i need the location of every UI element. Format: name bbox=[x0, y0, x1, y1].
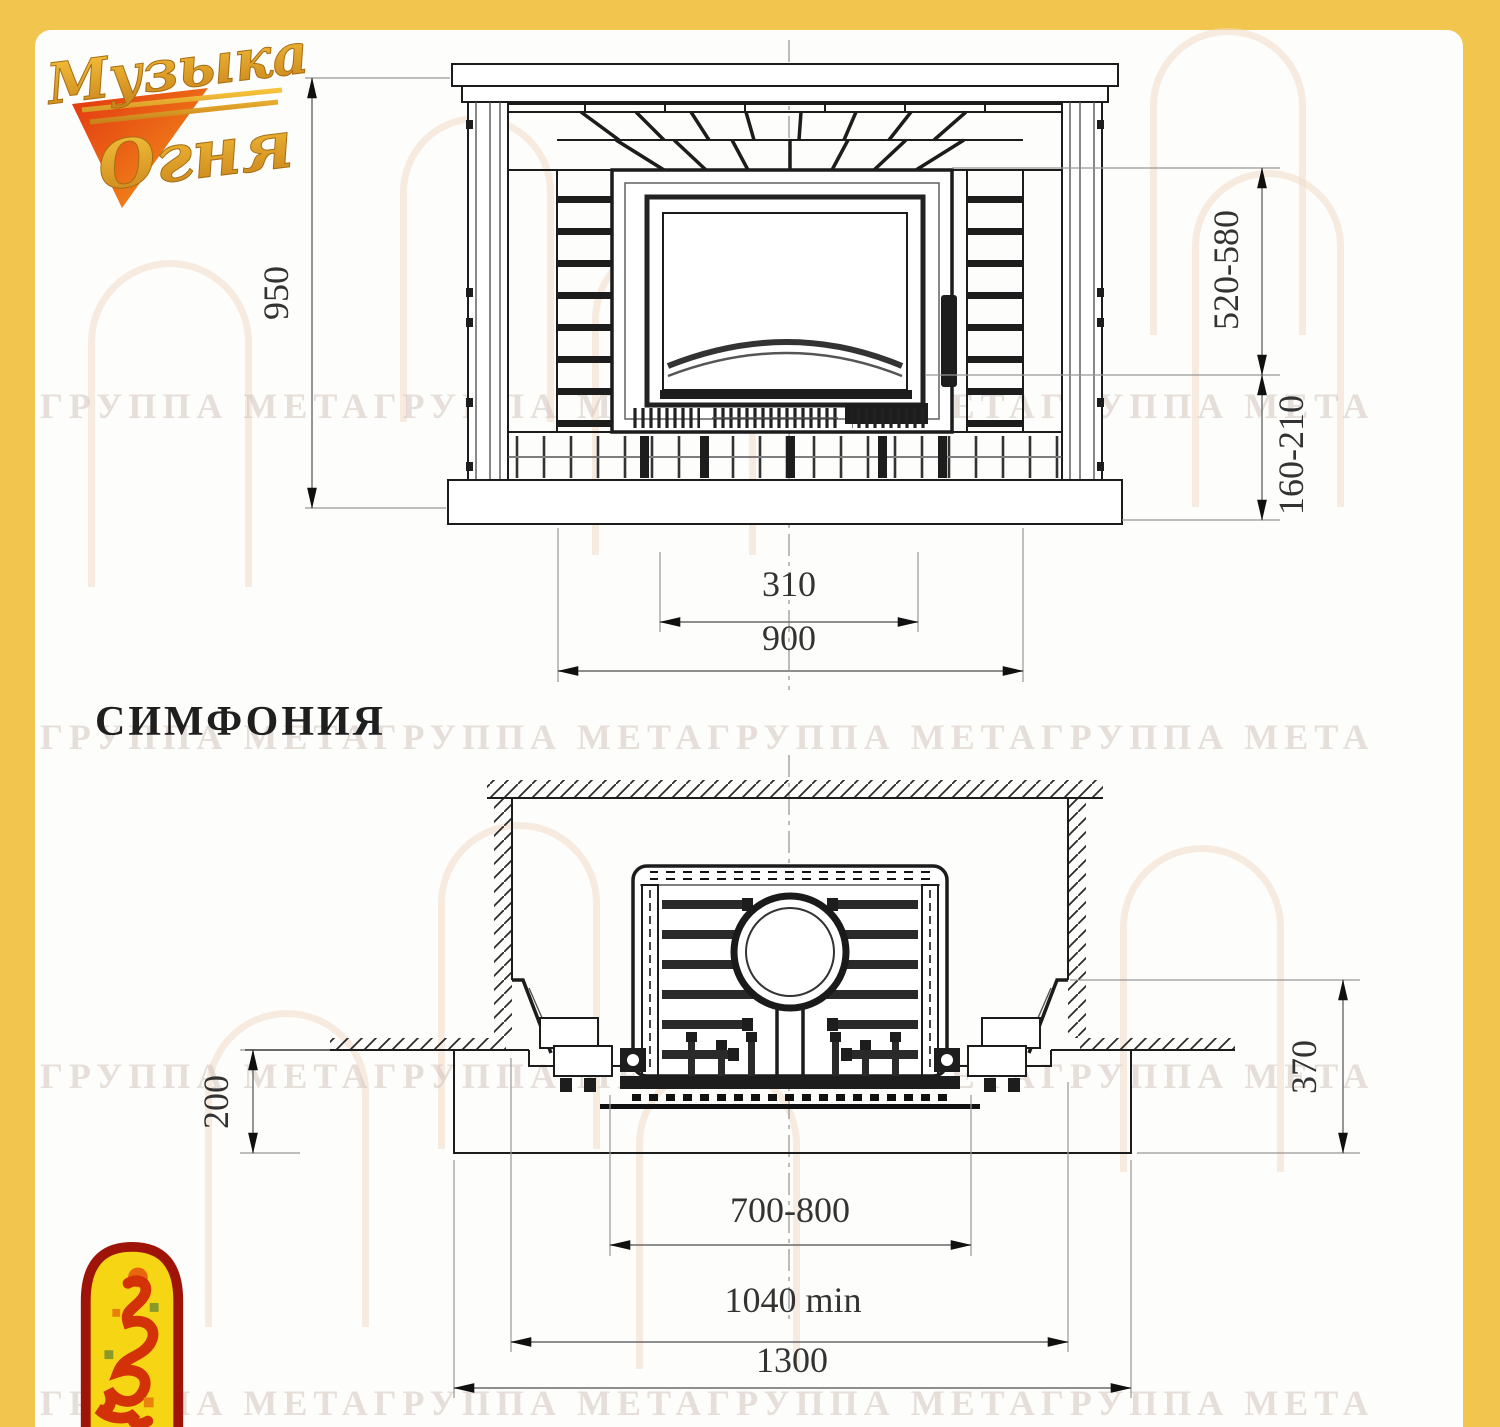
hearth-slats bbox=[508, 432, 1062, 478]
technical-drawing: 950 520-580 160-210 310 900 bbox=[0, 0, 1500, 1427]
door-handle bbox=[941, 295, 957, 387]
dim-width: 900 bbox=[762, 618, 816, 658]
left-side-console bbox=[512, 980, 612, 1092]
emblem-spark bbox=[150, 1303, 159, 1312]
dim-firebox-top: 520-580 bbox=[1206, 210, 1246, 330]
emblem-spark bbox=[112, 1309, 120, 1317]
mantel-molding bbox=[462, 86, 1108, 102]
vent-grille-left bbox=[630, 408, 700, 428]
dim-wall-offset: 370 bbox=[1284, 1040, 1324, 1094]
dim-hearth-depth: 200 bbox=[196, 1075, 236, 1129]
fire-dancer-emblem bbox=[78, 1240, 186, 1427]
emblem-spark bbox=[144, 1397, 154, 1407]
dim-niche-width: 1040 min bbox=[724, 1280, 861, 1320]
catalog-page: { "page": { "title_label": "СИМФОНИЯ" },… bbox=[0, 0, 1500, 1427]
right-brick-courses bbox=[967, 170, 1023, 432]
frieze-bricks bbox=[508, 104, 1062, 170]
flue-collar bbox=[734, 896, 846, 1008]
front-view: 950 520-580 160-210 310 900 bbox=[256, 40, 1311, 690]
left-column bbox=[468, 102, 508, 480]
mantel-shelf bbox=[452, 64, 1118, 86]
firebox-front bbox=[612, 170, 957, 432]
base-slab bbox=[448, 480, 1122, 524]
plan-view: 200 370 700-800 1040 min 1300 bbox=[196, 755, 1360, 1398]
emblem-spark bbox=[104, 1350, 113, 1359]
vent-grille-right bbox=[852, 408, 928, 428]
dim-firebox-bottom: 160-210 bbox=[1271, 395, 1311, 515]
right-side-console bbox=[968, 980, 1068, 1092]
right-column bbox=[1062, 102, 1102, 480]
left-brick-courses bbox=[557, 170, 613, 432]
firebox-door bbox=[647, 197, 923, 405]
dim-insert-width: 700-800 bbox=[730, 1190, 850, 1230]
dim-base-width: 1300 bbox=[756, 1340, 828, 1380]
insert-plan bbox=[600, 866, 980, 1109]
dim-opening-width: 310 bbox=[762, 564, 816, 604]
dim-height: 950 bbox=[256, 266, 296, 320]
